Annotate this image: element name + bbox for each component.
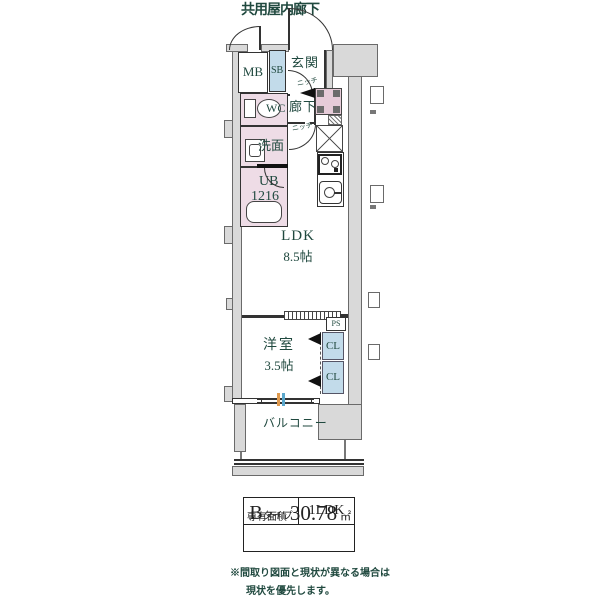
- closet-bottom: CL: [322, 361, 344, 394]
- washroom-label: 洗面: [258, 139, 284, 153]
- washer-space: [315, 88, 342, 115]
- entrance-door-leaf: [288, 8, 290, 50]
- stove-burner-icon: [321, 157, 329, 165]
- balcony-edge-line: [344, 440, 346, 460]
- wc-label: WC: [266, 102, 285, 115]
- toilet-tank-icon: [244, 99, 256, 118]
- hallway-label: 廊下: [289, 100, 317, 114]
- disclaimer-line1: ※間取り図面と現状が異なる場合は: [230, 564, 390, 579]
- unit-type-sub: タイプ: [263, 507, 293, 522]
- ldk-name: LDK: [262, 228, 334, 245]
- washer-corner: [333, 90, 340, 97]
- entrance-door-arc: [289, 8, 333, 50]
- washer-corner: [317, 90, 324, 97]
- window-tick-blue: [282, 393, 285, 406]
- bedroom-size: 3.5帖: [244, 359, 314, 373]
- closet-door-marker: [308, 333, 321, 345]
- closet-door-marker: [308, 375, 321, 387]
- meter-box-room: MB: [238, 52, 268, 93]
- stove-burner-icon: [331, 160, 339, 168]
- pipe-space-label: PS: [332, 320, 341, 329]
- unit-layout-cell: 1LDK: [299, 498, 354, 524]
- pillar-bracket: [370, 185, 384, 203]
- bedroom-name: 洋室: [244, 338, 314, 353]
- info-table-row-type: Bタイプ 1LDK: [244, 498, 354, 525]
- right-wall-band: [348, 76, 362, 406]
- hall-door-arc: [289, 124, 316, 150]
- pillar-bracket: [226, 298, 233, 310]
- unit-type-main: B: [249, 502, 262, 525]
- bedroom-label: 洋室 3.5帖: [244, 338, 314, 374]
- ldk-size: 8.5帖: [262, 250, 334, 264]
- ldk-label: LDK 8.5帖: [262, 228, 334, 264]
- balcony-window: [257, 398, 314, 400]
- balcony-bottom-bar: [232, 466, 364, 476]
- closet-bottom-label: CL: [326, 371, 340, 383]
- pillar-bracket: [224, 120, 233, 138]
- mb-door-arc: [229, 26, 260, 50]
- pillar-bracket: [370, 86, 384, 104]
- pillar-bracket: [368, 344, 380, 360]
- washer-corner: [333, 106, 340, 113]
- mb-door-leaf: [259, 26, 261, 50]
- meter-box-label: MB: [243, 65, 263, 79]
- top-wall-right-block: [333, 44, 378, 77]
- unit-layout: 1LDK: [309, 503, 345, 519]
- washer-corner: [317, 106, 324, 113]
- wall-tick: [370, 110, 376, 114]
- door-swing-marker: [300, 88, 315, 98]
- stove-dot: [334, 168, 338, 172]
- wall-tick: [370, 205, 376, 209]
- shoe-box: SB: [269, 50, 286, 92]
- counter-hatch-box: [328, 115, 342, 125]
- shoe-box-label: SB: [271, 65, 283, 76]
- kitchen-tap-icon: [334, 192, 342, 194]
- bathtub-icon: [246, 201, 282, 223]
- info-table: Bタイプ 1LDK 専有面積 30.78 ㎡: [243, 497, 355, 552]
- balcony-label: バルコニー: [263, 417, 328, 430]
- balcony-window: [257, 402, 314, 404]
- window-tick-orange: [277, 393, 280, 406]
- disclaimer-line2: 現状を優先します。: [246, 582, 335, 597]
- pipe-space: PS: [326, 317, 346, 331]
- closet-top-label: CL: [326, 340, 340, 352]
- balcony-railing: [234, 463, 364, 465]
- balcony-railing: [234, 459, 364, 461]
- room-divider-wall: [242, 315, 284, 318]
- balcony-left-wall: [234, 404, 246, 452]
- floor-plan: 共用屋内廊下 MB SB 玄関 ニッチ 廊下 ニッチ WC 洗面: [0, 0, 600, 600]
- genkan-label: 玄関: [291, 56, 319, 70]
- unit-type-cell: Bタイプ: [244, 498, 299, 524]
- pillar-bracket: [368, 292, 380, 308]
- pillar-bracket: [224, 226, 233, 244]
- refrigerator-space: [316, 125, 343, 152]
- closet-top: CL: [322, 332, 344, 360]
